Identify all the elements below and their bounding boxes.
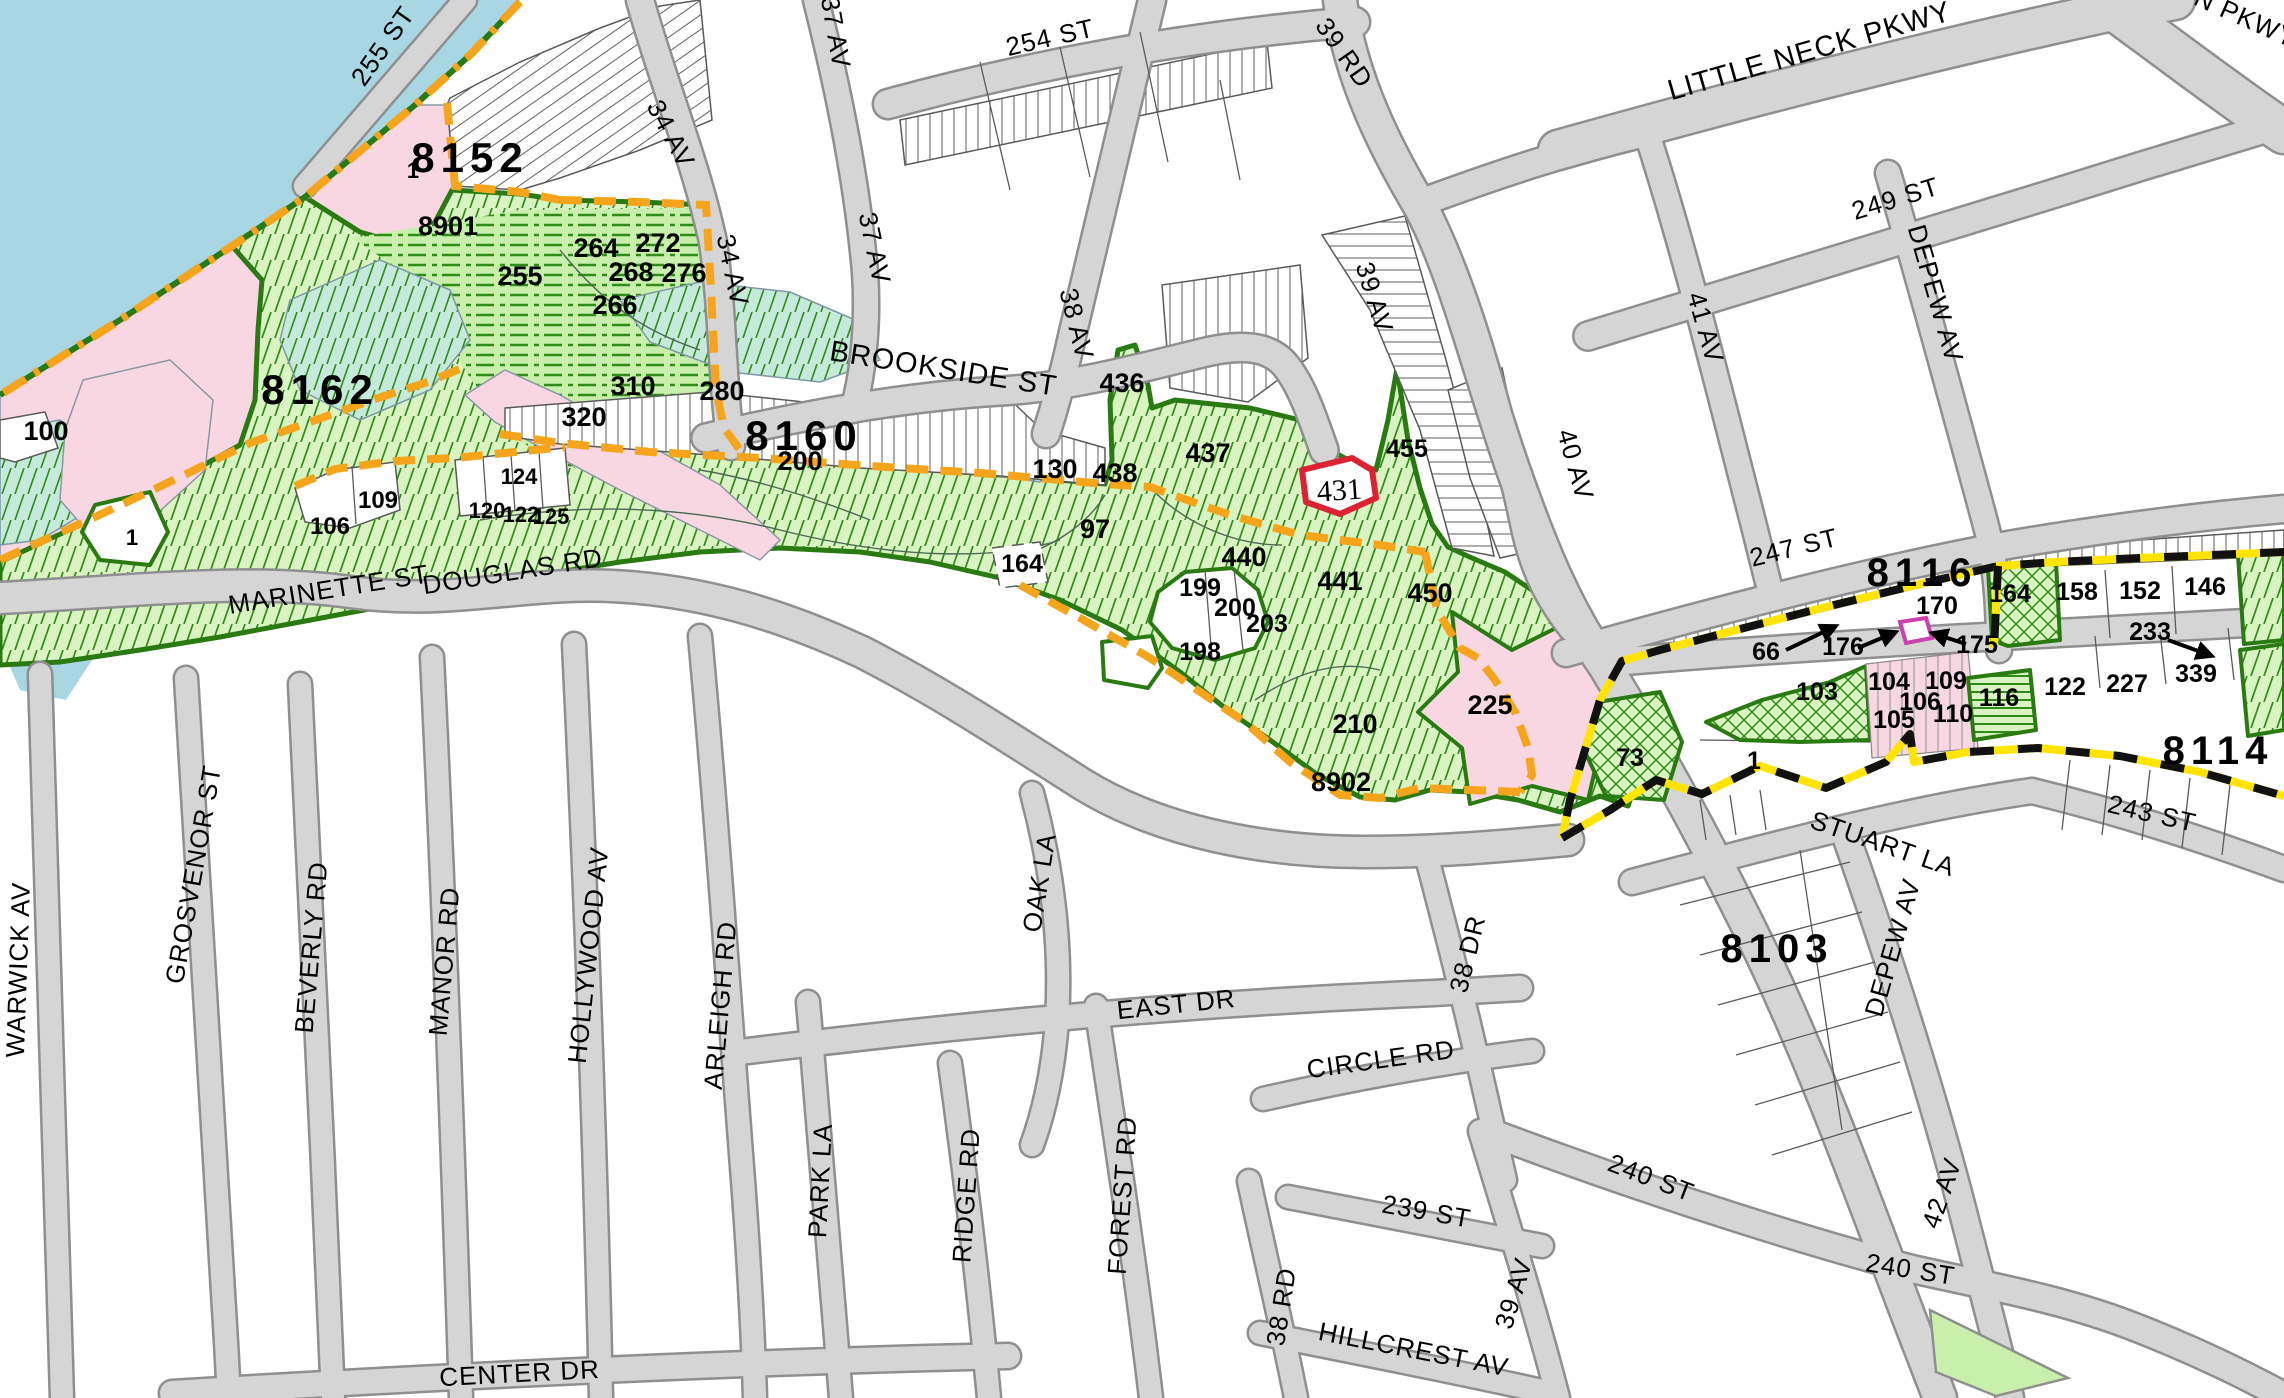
lot-label-276: 276 <box>661 258 706 288</box>
street-label-hollywood-av: HOLLYWOOD AV <box>562 845 615 1065</box>
lot-label-158: 158 <box>2056 578 2098 606</box>
block-label-8103: 8103 <box>1721 927 1834 971</box>
street-label-40-av: 40 AV <box>1551 426 1600 504</box>
lot-label-210: 210 <box>1332 709 1377 739</box>
block-label-8152: 8152 <box>411 134 528 181</box>
lot-label-120: 120 <box>469 498 506 523</box>
lot-label-440: 440 <box>1221 542 1266 572</box>
lot-label-66: 66 <box>1752 638 1780 666</box>
lot-label-200: 200 <box>777 446 822 476</box>
lot-label-441: 441 <box>1317 566 1362 596</box>
lot-label-8902: 8902 <box>1311 767 1371 797</box>
lot-label-272: 272 <box>635 228 680 258</box>
lot-label-8901: 8901 <box>418 211 478 241</box>
lot-label-227: 227 <box>2106 670 2148 698</box>
block-label-8162: 8162 <box>261 366 378 413</box>
lot-label-1: 1 <box>407 158 419 183</box>
street-label-park-la: PARK LA <box>802 1122 838 1238</box>
lot-label-124: 124 <box>501 464 538 489</box>
lot-label-175: 175 <box>1956 631 1998 659</box>
lot-label-198: 198 <box>1179 638 1221 666</box>
street-label-warwick-av: WARWICK AV <box>0 881 36 1058</box>
parcel-map-canvas[interactable]: 255 ST34 AV37 AV254 ST39 RD34 AV37 AV38 … <box>0 0 2284 1398</box>
lot-label-455: 455 <box>1386 435 1428 463</box>
lot-label-266: 266 <box>592 290 637 320</box>
lot-label-106: 106 <box>310 513 350 540</box>
lot-label-1: 1 <box>1747 747 1761 775</box>
lot-label-339: 339 <box>2175 660 2217 688</box>
lot-label-436: 436 <box>1099 368 1144 398</box>
lot-label-105: 105 <box>1873 706 1915 734</box>
lot-label-122: 122 <box>2044 673 2086 701</box>
lot-label-130: 130 <box>1032 454 1077 484</box>
lot-label-1: 1 <box>126 525 138 550</box>
lot-label-225: 225 <box>1467 690 1512 720</box>
lot-label-170: 170 <box>1916 592 1958 620</box>
lot-label-268: 268 <box>608 257 653 287</box>
street-label-grosvenor-st: GROSVENOR ST <box>159 763 227 986</box>
lot-label-103: 103 <box>1796 678 1838 706</box>
lot-label-310: 310 <box>610 371 655 401</box>
lot-label-146: 146 <box>2184 573 2226 601</box>
lot-label-450: 450 <box>1407 578 1452 608</box>
lot-label-437: 437 <box>1185 438 1230 468</box>
lot-label-431: 431 <box>1316 472 1363 508</box>
lot-label-152: 152 <box>2119 577 2161 605</box>
lot-label-97: 97 <box>1080 514 1110 544</box>
lot-label-203: 203 <box>1246 610 1288 638</box>
lot-label-320: 320 <box>561 402 606 432</box>
lot-label-164: 164 <box>1989 580 2031 608</box>
lot-label-110: 110 <box>1933 700 1973 728</box>
lot-label-233: 233 <box>2129 618 2171 646</box>
lot-label-100: 100 <box>23 416 68 446</box>
block-label-8114: 8114 <box>2163 729 2274 773</box>
lot-label-164: 164 <box>1001 550 1043 578</box>
lot-label-125: 125 <box>533 504 570 529</box>
lot-label-116: 116 <box>1979 684 2019 712</box>
lot-label-73: 73 <box>1616 744 1644 772</box>
block-label-8116: 8116 <box>1867 551 1978 595</box>
lot-label-280: 280 <box>699 376 744 406</box>
lot-label-255: 255 <box>497 261 542 291</box>
street-label-n-pkwy: N PKWY <box>2190 0 2284 54</box>
lot-label-109: 109 <box>358 487 398 514</box>
lot-label-438: 438 <box>1092 458 1137 488</box>
lot-label-176: 176 <box>1822 633 1864 661</box>
